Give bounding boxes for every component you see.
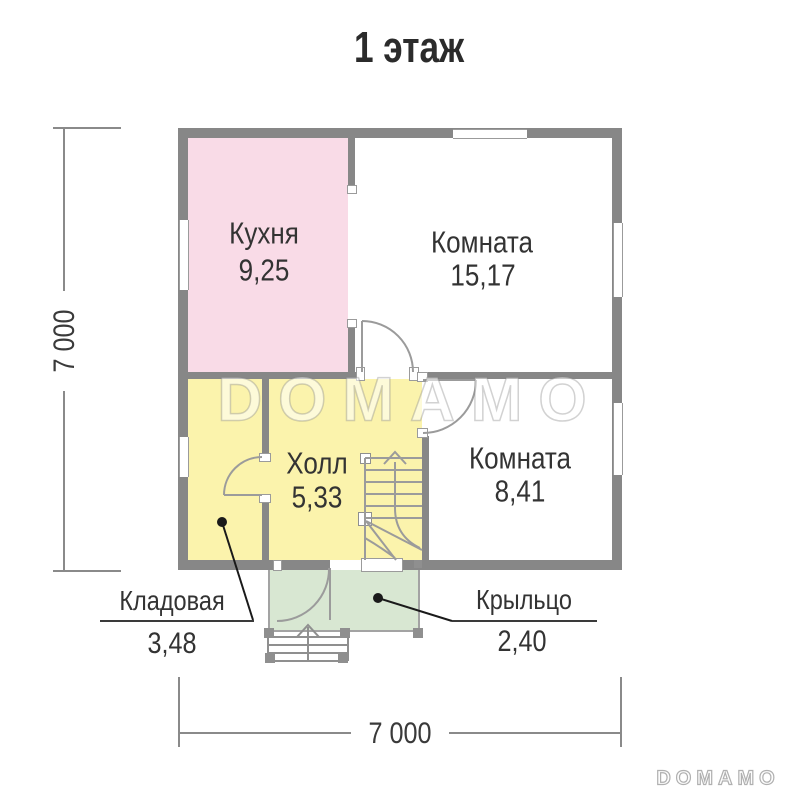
door-storage	[224, 457, 262, 495]
room-area-room2: 8,41	[495, 476, 546, 507]
callout-underline-porch	[452, 620, 597, 622]
callout-underline-storage	[100, 620, 254, 622]
staircase	[365, 452, 422, 560]
callout-label-storage: Кладовая	[119, 585, 224, 617]
leader-porch	[373, 593, 452, 621]
watermark: DOMAMO	[217, 365, 602, 436]
room-label-room1: Комната	[431, 227, 533, 258]
dimension-text-vertical: 7 000	[48, 309, 82, 372]
room-area-kitchen: 9,25	[239, 255, 290, 286]
brand-logo: DOMAMO	[656, 768, 779, 791]
room-label-kitchen: Кухня	[229, 218, 299, 249]
room-label-hall: Холл	[286, 448, 347, 479]
porch-steps	[268, 625, 348, 661]
callout-label-porch: Крыльцо	[476, 584, 572, 616]
room-area-room1: 15,17	[450, 260, 515, 291]
callout-area-storage: 3,48	[147, 627, 196, 661]
floor-plan-page: 1 этаж	[0, 0, 800, 800]
dimension-text-horizontal: 7 000	[368, 717, 431, 751]
room-label-room2: Комната	[469, 443, 571, 474]
door-porch	[277, 568, 330, 621]
room-area-hall: 5,33	[292, 482, 343, 513]
callout-area-porch: 2,40	[497, 625, 546, 659]
